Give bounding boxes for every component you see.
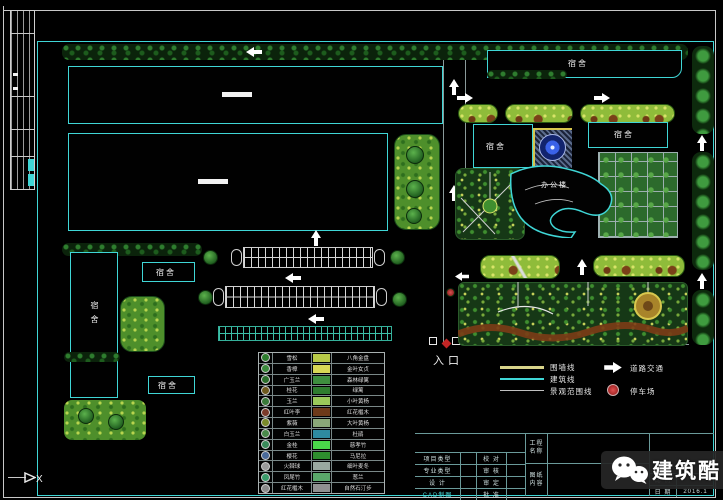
tree	[198, 290, 213, 305]
title-field-label: 专业类型	[415, 465, 461, 476]
title-field-label: 审 核	[477, 465, 507, 476]
plant-swatch	[313, 397, 330, 405]
tree	[78, 408, 94, 424]
strip-highlight-cell	[28, 174, 34, 186]
parking-end-cap	[231, 249, 242, 266]
plant-name: 红叶李	[273, 407, 312, 417]
plant-name: 紫薇	[273, 418, 312, 428]
plant-legend-row: 玉兰 小叶黄杨	[259, 395, 384, 406]
arrow-right-icon	[594, 93, 610, 103]
tree-icon	[261, 397, 270, 406]
arrow-left-icon	[285, 273, 301, 283]
legend-label: 停车场	[630, 386, 656, 397]
tree-strip	[692, 290, 714, 345]
plant-swatch	[313, 484, 330, 492]
building-label-mark	[198, 179, 228, 184]
title-left-table: 项目类型 校 对 专业类型 审 核 设 计 审 定 CAD制图 批 准	[415, 452, 525, 496]
arrow-left-icon	[308, 314, 324, 324]
axis-arrow-icon	[24, 472, 36, 483]
plant-swatch	[313, 419, 330, 427]
parking-row	[243, 247, 373, 268]
road-arrow-icon	[604, 362, 622, 373]
plant-legend-row: 火棘球 细叶麦冬	[259, 460, 384, 471]
strip-divider	[11, 96, 34, 97]
red-leaf-tree	[446, 288, 455, 297]
road-edge	[443, 60, 444, 345]
outer-border-bottom	[3, 497, 716, 498]
strip-divider	[11, 129, 34, 130]
tree-strip	[692, 46, 714, 134]
plant-name: 樱花	[273, 451, 312, 461]
tree-icon	[261, 408, 270, 417]
plant-name: 雪松	[273, 353, 312, 363]
arrow-up-icon	[577, 259, 587, 275]
tree-icon	[261, 386, 270, 395]
parking-symbol-icon	[607, 384, 619, 396]
plant-name: 杜鹃	[332, 429, 384, 439]
title-field-value	[461, 465, 477, 476]
plant-legend-row: 广玉兰 森林绿篱	[259, 374, 384, 385]
title-field-label: 校 对	[477, 453, 507, 464]
plant-name: 小叶黄杨	[332, 396, 384, 406]
building-label: 宿舍	[568, 58, 588, 69]
plant-name: 自然石汀步	[332, 483, 384, 493]
tree-icon	[261, 353, 270, 362]
plant-name: 白玉兰	[273, 429, 312, 439]
parking-row	[225, 286, 375, 308]
title-name-column: 工程名称 图纸内容	[525, 433, 548, 496]
sheet-content-label: 图纸内容	[530, 472, 544, 489]
plant-legend-row: 凤尾竹 葱兰	[259, 471, 384, 482]
planting-bed	[120, 296, 165, 352]
strip-text-mark	[13, 87, 18, 90]
tree	[406, 146, 424, 164]
title-field-label: 项目类型	[415, 453, 461, 464]
title-field-value	[461, 477, 477, 488]
tree-icon	[261, 375, 270, 384]
plant-name: 红花檵木	[332, 407, 384, 417]
arrow-up-icon	[697, 135, 707, 151]
tree	[390, 250, 405, 265]
plant-swatch	[313, 387, 330, 395]
building-label: 宿舍	[614, 129, 634, 140]
title-field-label: 设 计	[415, 477, 461, 488]
wechat-icon	[609, 454, 649, 486]
legend-label: 景观范围线	[550, 386, 593, 397]
planting-bed	[580, 104, 675, 123]
plant-swatch	[313, 376, 330, 384]
factory-building-2	[68, 133, 388, 231]
office-building-shape	[505, 160, 633, 238]
building-label-mark	[222, 92, 252, 97]
cad-site-plan: 宿舍 宿舍 宿舍 办公楼 宿舍 宿舍 宿舍	[0, 0, 723, 500]
strip-divider	[11, 33, 34, 34]
parking-row-hedge	[218, 326, 392, 341]
parking-end-cap	[376, 288, 387, 306]
tree-icon	[261, 451, 270, 460]
plant-legend-row: 桂花 绿篱	[259, 385, 384, 396]
plant-name: 金叶女贞	[332, 364, 384, 374]
hedge	[64, 352, 120, 362]
plant-name: 马尼拉	[332, 451, 384, 461]
planting-bed	[505, 104, 573, 123]
plant-swatch	[313, 441, 330, 449]
arrow-up-icon	[311, 230, 321, 246]
plant-swatch	[313, 430, 330, 438]
watermark: 建筑酷	[601, 451, 723, 489]
tree-icon	[261, 484, 270, 493]
title-field-value	[461, 489, 477, 500]
axis-x-label: X	[36, 474, 43, 485]
plant-legend-row: 红花檵木 自然石汀步	[259, 482, 384, 493]
factory-building-1	[68, 66, 443, 124]
title-field-label: CAD制图	[415, 489, 461, 500]
frame-revision-strip	[10, 10, 35, 190]
strip-text-mark	[13, 73, 18, 76]
plant-swatch	[313, 462, 330, 470]
building-label: 宿舍	[158, 380, 178, 391]
planting-bed	[480, 255, 560, 279]
tree-icon	[261, 473, 270, 482]
entrance-label: 入口	[433, 352, 463, 368]
tree-icon	[261, 364, 270, 373]
plant-name: 玉兰	[273, 396, 312, 406]
plant-name: 金桂	[273, 440, 312, 450]
planting-bed	[458, 104, 498, 123]
tree	[392, 292, 407, 307]
plant-name: 绿篱	[332, 386, 384, 396]
plant-swatch	[313, 354, 330, 362]
plant-legend-row: 雪松 八角金盘	[259, 353, 384, 363]
title-field-value	[507, 453, 525, 464]
plant-legend-row: 金桂 慈孝竹	[259, 439, 384, 450]
building-line-sample	[500, 378, 544, 380]
tree-icon	[261, 429, 270, 438]
tree-icon	[261, 440, 270, 449]
plant-swatch	[313, 365, 330, 373]
strip-highlight-cell	[28, 159, 34, 171]
project-name-label: 工程名称	[530, 440, 544, 457]
plant-name: 桂花	[273, 386, 312, 396]
arrow-left-icon	[455, 272, 469, 281]
plant-name: 火棘球	[273, 461, 312, 471]
plant-legend-row: 樱花 马尼拉	[259, 450, 384, 461]
outer-border-left	[3, 6, 4, 497]
plant-name: 凤尾竹	[273, 472, 312, 482]
arrow-up-icon	[697, 273, 707, 289]
plant-legend-row: 红叶李 红花檵木	[259, 406, 384, 417]
title-field-value	[507, 489, 525, 500]
lawn-area	[64, 400, 146, 440]
title-field-value	[461, 453, 477, 464]
plant-swatch	[313, 452, 330, 460]
strip-divider	[11, 156, 34, 157]
legend-label: 建筑线	[550, 374, 576, 385]
parking-end-cap	[374, 249, 385, 266]
tree	[406, 208, 422, 224]
dorm-building-tall: 宿舍	[70, 252, 118, 398]
tree	[203, 250, 218, 265]
garden-strip-paths	[458, 282, 688, 346]
plant-swatch	[313, 408, 330, 416]
plant-name: 红花檵木	[273, 483, 312, 493]
watermark-brand: 建筑酷	[652, 455, 721, 485]
outer-border-right	[715, 10, 716, 497]
title-field-value	[507, 477, 525, 488]
parking-end-cap	[213, 288, 224, 306]
plant-name: 葱兰	[332, 472, 384, 482]
plant-legend-row: 白玉兰 杜鹃	[259, 428, 384, 439]
plant-legend-row: 香樟 金叶女贞	[259, 363, 384, 374]
arrow-left-icon	[246, 47, 262, 57]
tree	[108, 414, 124, 430]
tree	[406, 180, 424, 198]
plant-name: 广玉兰	[273, 375, 312, 385]
outer-border-top	[3, 10, 716, 11]
title-field-label: 批 准	[477, 489, 507, 500]
scope-line-sample	[500, 390, 544, 391]
legend-label: 道路交通	[630, 363, 664, 374]
fountain	[539, 134, 566, 161]
plant-name: 细叶麦冬	[332, 461, 384, 471]
title-field-value	[507, 465, 525, 476]
plant-name: 慈孝竹	[332, 440, 384, 450]
hedge	[487, 70, 567, 79]
plant-name: 香樟	[273, 364, 312, 374]
plant-swatch	[313, 473, 330, 481]
gate-post	[429, 337, 437, 345]
tree-icon	[261, 418, 270, 427]
building-label: 办公楼	[541, 180, 568, 190]
title-field-label: 审 定	[477, 477, 507, 488]
planting-bed	[593, 255, 685, 277]
arrow-right-icon	[457, 93, 473, 103]
building-label: 宿舍	[89, 301, 100, 329]
plant-name: 八角金盘	[332, 353, 384, 363]
tree-icon	[261, 462, 270, 471]
legend-label: 围墙线	[550, 362, 576, 373]
building-label: 宿舍	[486, 141, 506, 152]
plant-name: 森林绿篱	[332, 375, 384, 385]
plant-legend-table: 雪松 八角金盘 香樟 金叶女贞 广玉兰 森林绿篱 桂花 绿篱 玉兰 小叶黄杨	[258, 352, 385, 494]
wall-line-sample	[500, 366, 544, 369]
plant-name: 大叶黄杨	[332, 418, 384, 428]
plant-legend-row: 紫薇 大叶黄杨	[259, 417, 384, 428]
tree-strip	[692, 152, 714, 270]
building-label: 宿舍	[156, 267, 176, 278]
